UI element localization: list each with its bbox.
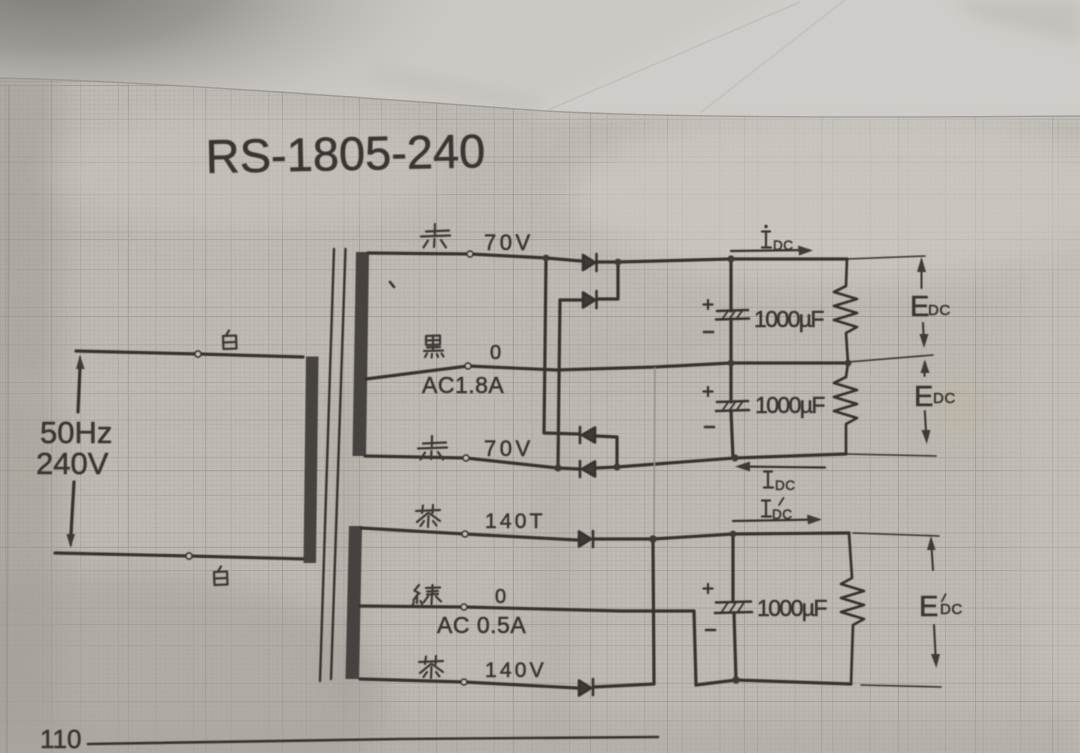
svg-text:DC: DC <box>933 390 956 407</box>
svg-text:E: E <box>914 381 933 413</box>
svg-text:140V: 140V <box>485 659 547 682</box>
svg-text:DC: DC <box>928 302 951 319</box>
svg-text:E: E <box>910 291 929 323</box>
svg-text:70V: 70V <box>484 230 534 255</box>
svg-text:DC: DC <box>940 601 963 618</box>
svg-text:140T: 140T <box>485 510 546 533</box>
svg-text:E: E <box>919 591 938 623</box>
svg-text:0: 0 <box>495 586 506 608</box>
svg-text:DC: DC <box>775 478 796 493</box>
svg-text:DC: DC <box>773 238 794 253</box>
svg-text:AC 0.5A: AC 0.5A <box>437 612 526 638</box>
svg-text:240V: 240V <box>36 446 109 481</box>
svg-text:AC1.8A: AC1.8A <box>422 372 504 398</box>
svg-text:110: 110 <box>40 724 81 753</box>
svg-text:50Hz: 50Hz <box>40 415 112 450</box>
svg-text:0: 0 <box>490 342 501 364</box>
svg-text:DC: DC <box>772 507 793 522</box>
svg-text:70V: 70V <box>484 436 534 461</box>
svg-text:RS-1805-240: RS-1805-240 <box>205 124 486 183</box>
svg-text:1000µF: 1000µF <box>755 392 825 418</box>
svg-text:1000µF: 1000µF <box>757 595 827 621</box>
svg-text:1000µF: 1000µF <box>754 306 824 332</box>
